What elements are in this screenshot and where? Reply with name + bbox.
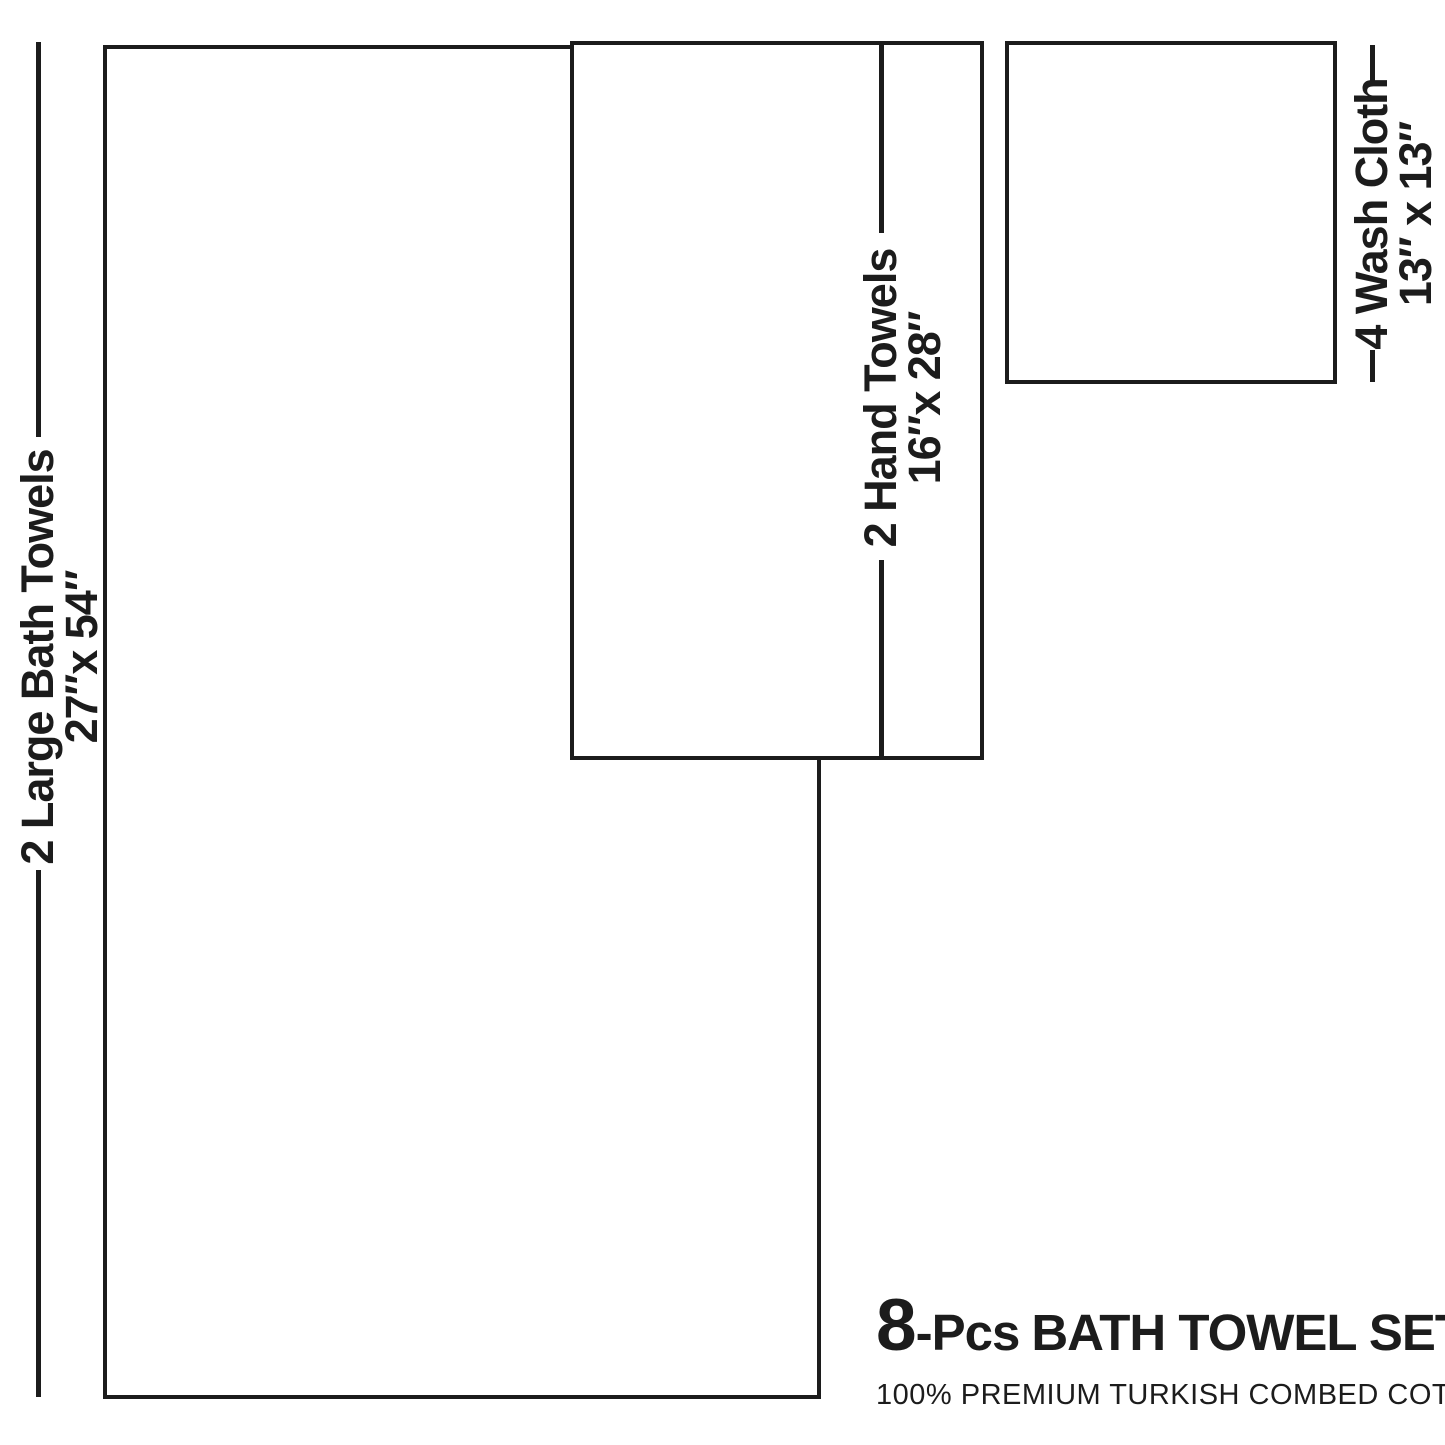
hand-towel-label: 2 Hand Towels 16″x 28″ (859, 249, 947, 548)
wash-cloth-rect (1005, 41, 1337, 384)
wash-cloth-label: 4 Wash Cloth 13″ x 13″ (1350, 78, 1438, 349)
bath-towel-dimension-line-upper (36, 42, 41, 437)
wash-cloth-size-text: 13″ x 13″ (1394, 78, 1438, 349)
hand-towel-dimension-line-lower (879, 560, 884, 758)
piece-count: 8 (876, 1285, 916, 1366)
wash-cloth-dimension-line-upper (1370, 45, 1375, 82)
hand-towel-label-text: 2 Hand Towels (859, 249, 903, 548)
bath-towel-dimension-line-lower (36, 870, 41, 1397)
product-subtitle: 100% PREMIUM TURKISH COMBED COTTON (876, 1379, 1445, 1412)
bath-towel-label: 2 Large Bath Towels 27″x 54″ (16, 449, 104, 864)
hand-towel-dimension-line-upper (879, 45, 884, 233)
hand-towel-size-text: 16″x 28″ (903, 249, 947, 548)
bath-towel-label-text: 2 Large Bath Towels (16, 449, 60, 864)
towel-set-size-diagram: 2 Large Bath Towels 27″x 54″ 2 Hand Towe… (0, 0, 1445, 1445)
wash-cloth-label-text: 4 Wash Cloth (1350, 78, 1394, 349)
product-title-block: 8-PcsBATH TOWEL SET 100% PREMIUM TURKISH… (876, 1289, 1445, 1412)
product-title: 8-PcsBATH TOWEL SET (876, 1289, 1445, 1362)
pcs-suffix: -Pcs (916, 1304, 1020, 1361)
set-name: BATH TOWEL SET (1031, 1304, 1445, 1361)
bath-towel-size-text: 27″x 54″ (60, 449, 104, 864)
wash-cloth-dimension-line-lower (1370, 350, 1375, 382)
